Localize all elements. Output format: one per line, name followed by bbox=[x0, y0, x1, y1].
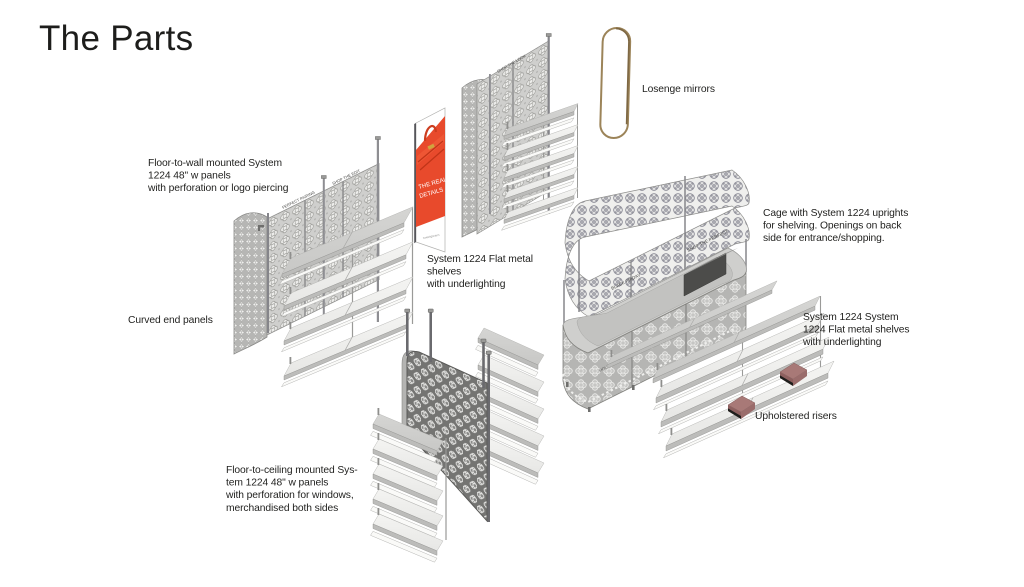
svg-text:The Parts: The Parts bbox=[39, 19, 193, 58]
svg-text:Upholstered risers: Upholstered risers bbox=[755, 411, 837, 422]
svg-text:Curved end panels: Curved end panels bbox=[128, 315, 213, 326]
svg-text:Losenge mirrors: Losenge mirrors bbox=[642, 84, 715, 95]
